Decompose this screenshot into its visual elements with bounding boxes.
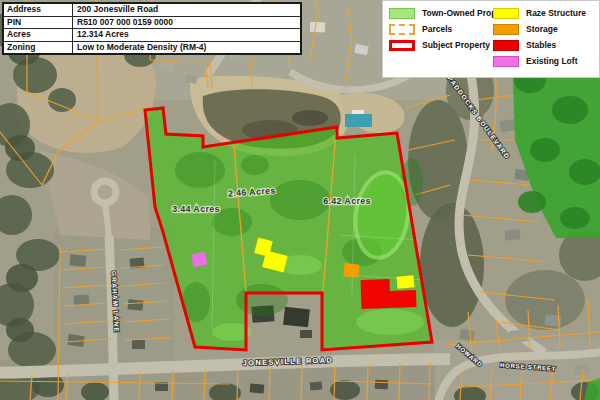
legend-column-1: Town-Owned Property Parcels Subject Prop… (389, 5, 493, 77)
info-value-zoning: Low to Moderate Density (RM-4) (73, 42, 300, 54)
property-info-table: Address 200 Jonesville Road PIN R510 007… (2, 2, 302, 55)
legend-label: Stables (526, 40, 556, 50)
legend-item-parcels: Parcels (389, 21, 493, 37)
legend-item-town-owned: Town-Owned Property (389, 5, 493, 21)
storage-shape (343, 263, 359, 277)
legend-item-raze-structure: Raze Structure (493, 5, 599, 21)
pool-building (345, 114, 372, 127)
info-value-acres: 12.314 Acres (73, 29, 300, 41)
info-value-pin: R510 007 000 0159 0000 (73, 17, 300, 29)
storage-swatch (493, 24, 519, 35)
legend-item-existing-loft: Existing Loft (493, 53, 599, 69)
map-legend: Town-Owned Property Parcels Subject Prop… (382, 0, 600, 78)
subject-property-swatch (389, 40, 415, 51)
legend-label: Raze Structure (526, 8, 586, 18)
raze-structure-shape-3 (397, 275, 415, 288)
legend-label: Storage (526, 24, 558, 34)
info-row-zoning: Zoning Low to Moderate Density (RM-4) (4, 42, 300, 54)
legend-label: Subject Property (422, 40, 490, 50)
info-label-address: Address (4, 4, 73, 16)
map-screenshot: 3.44 Acres 2.46 Acres 6.42 Acres JONESVI… (0, 0, 600, 400)
info-row-address: Address 200 Jonesville Road (4, 4, 300, 17)
legend-item-stables: Stables (493, 37, 599, 53)
existing-loft-swatch (493, 56, 519, 67)
info-row-acres: Acres 12.314 Acres (4, 29, 300, 42)
info-label-acres: Acres (4, 29, 73, 41)
legend-column-2: Raze Structure Storage Stables Existing … (493, 5, 599, 77)
legend-item-storage: Storage (493, 21, 599, 37)
info-label-zoning: Zoning (4, 42, 73, 54)
legend-label: Existing Loft (526, 56, 577, 66)
acreage-label-east: 6.42 Acres (323, 196, 371, 206)
town-owned-swatch (389, 8, 415, 19)
stables-swatch (493, 40, 519, 51)
legend-item-subject-property: Subject Property (389, 37, 493, 53)
raze-structure-swatch (493, 8, 519, 19)
info-label-pin: PIN (4, 17, 73, 29)
legend-label: Parcels (422, 24, 452, 34)
info-value-address: 200 Jonesville Road (73, 4, 300, 16)
acreage-label-west: 3.44 Acres (172, 204, 220, 214)
parcels-swatch (389, 24, 415, 35)
info-row-pin: PIN R510 007 000 0159 0000 (4, 17, 300, 30)
